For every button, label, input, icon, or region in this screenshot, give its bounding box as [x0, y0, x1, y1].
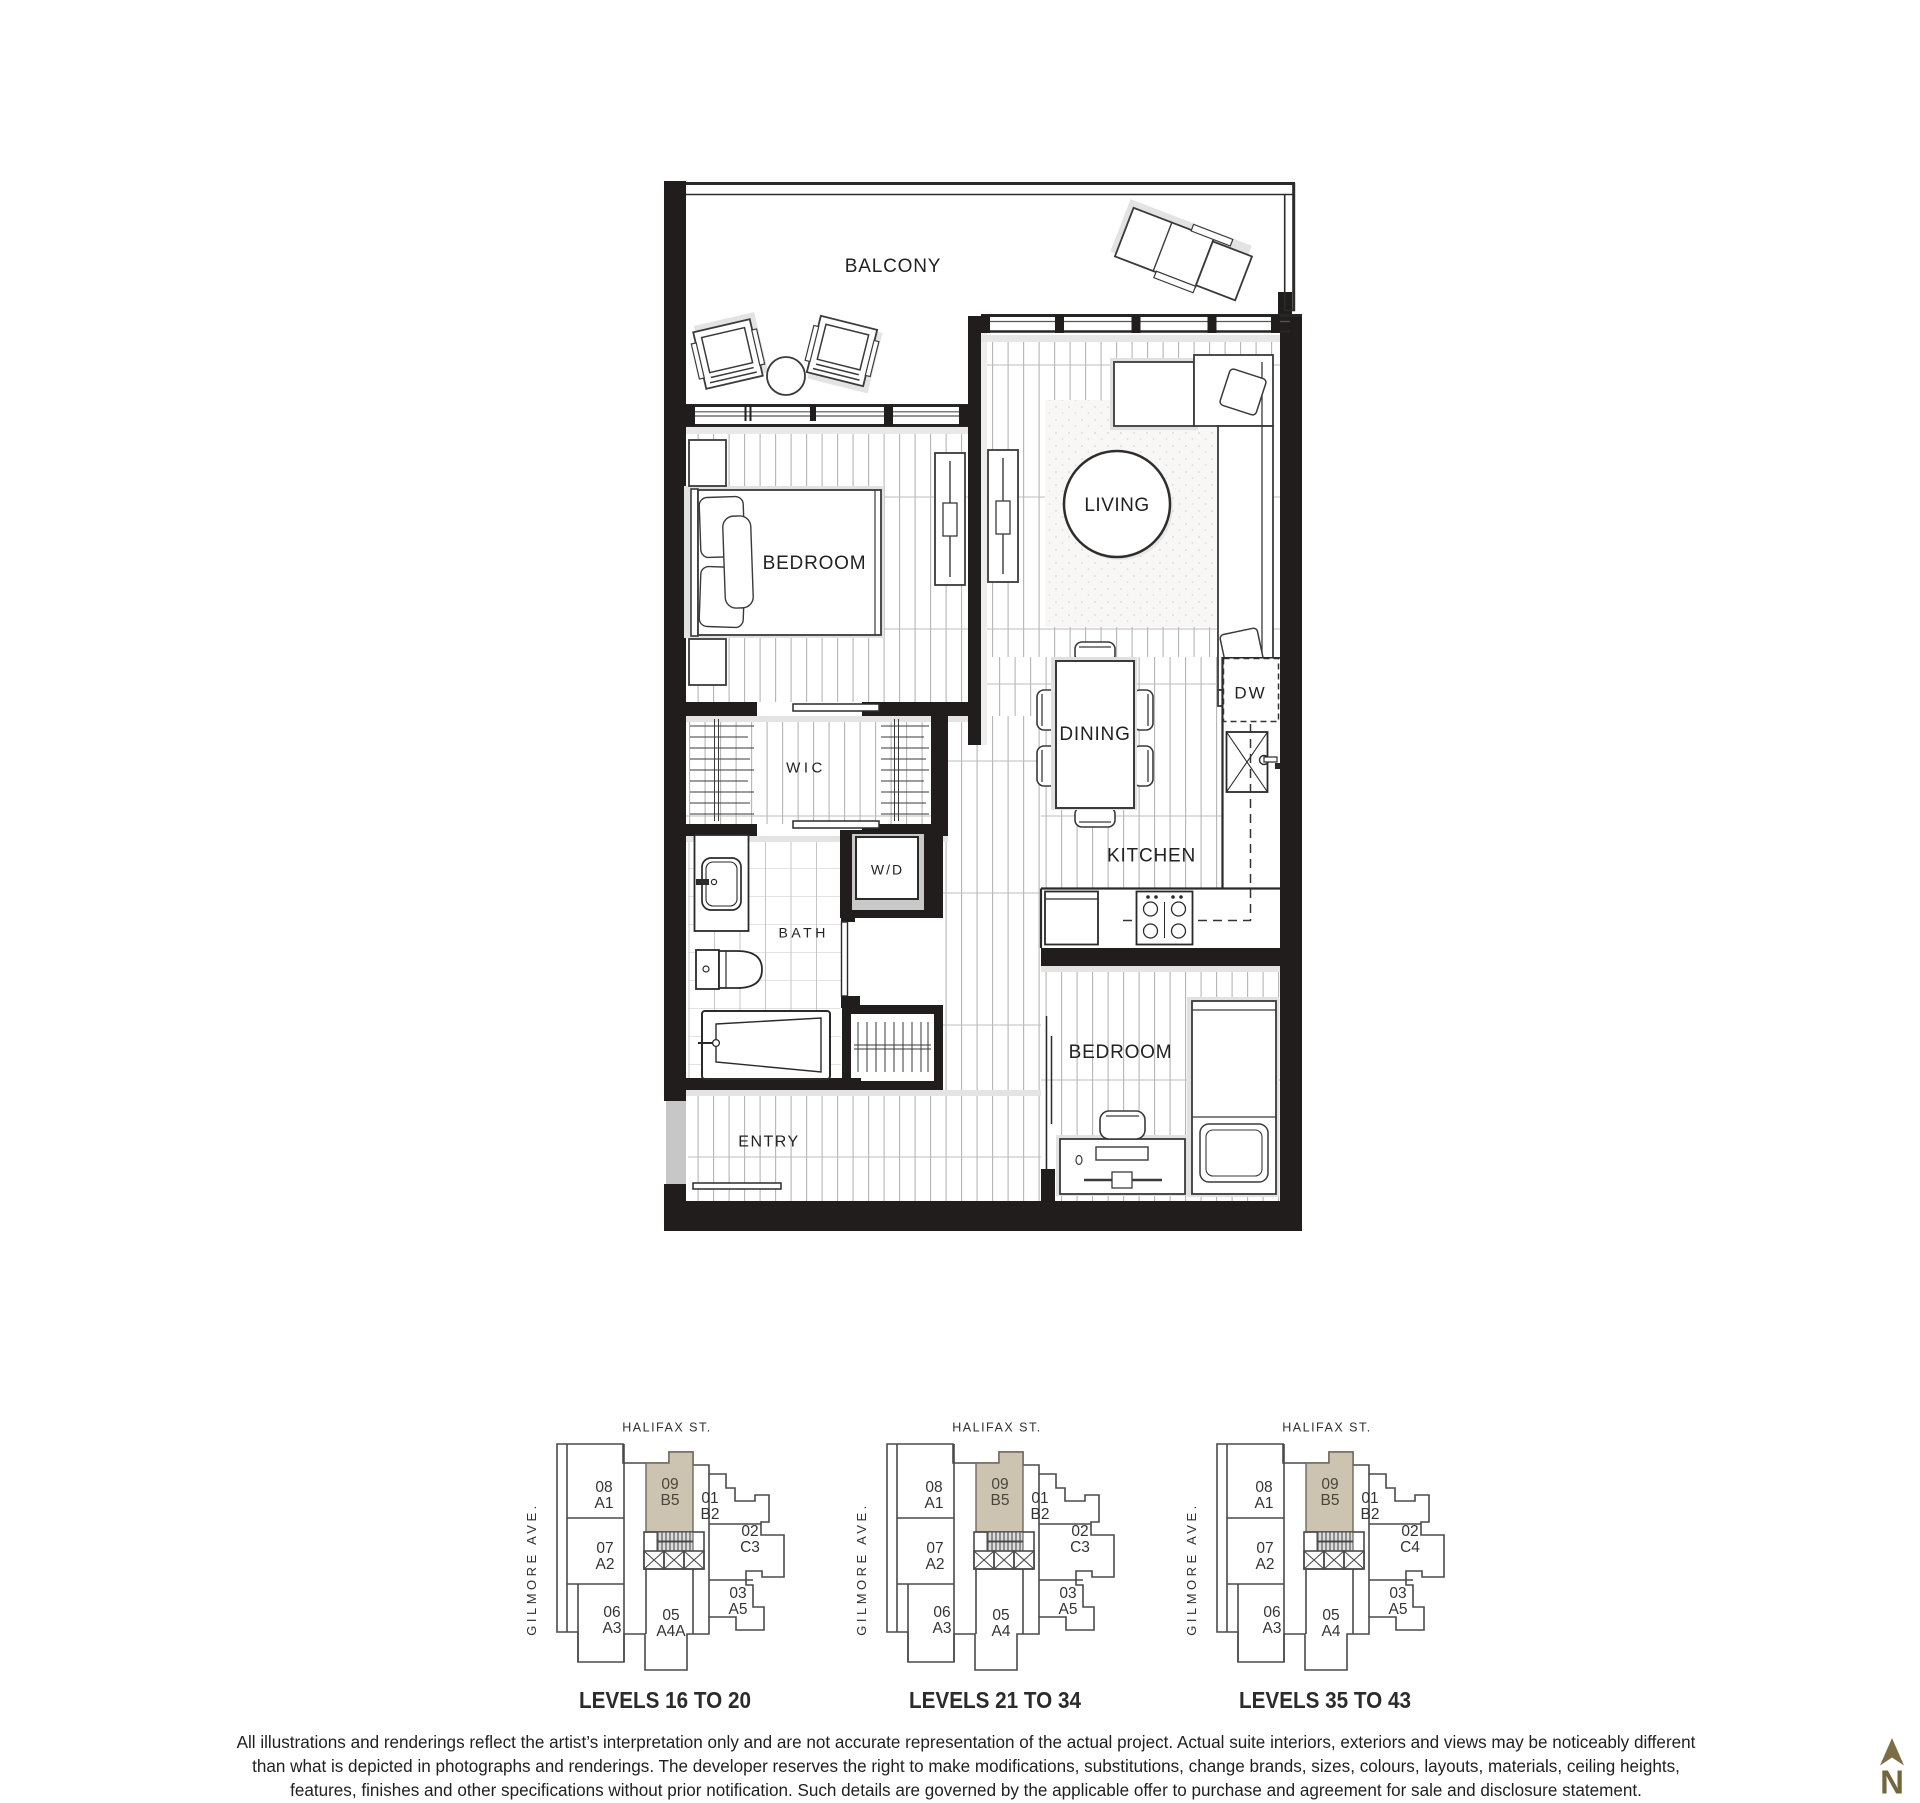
svg-text:GILMORE AVE.: GILMORE AVE.	[524, 1502, 539, 1636]
svg-text:06: 06	[603, 1604, 620, 1621]
svg-text:LEVELS 35 TO 43: LEVELS 35 TO 43	[1239, 1687, 1411, 1713]
svg-text:B2: B2	[1361, 1506, 1380, 1523]
svg-text:02: 02	[1401, 1523, 1418, 1540]
svg-text:A4: A4	[992, 1623, 1011, 1640]
svg-text:03: 03	[1059, 1585, 1076, 1602]
svg-text:A5: A5	[729, 1601, 748, 1618]
svg-text:HALIFAX ST.: HALIFAX ST.	[622, 1421, 711, 1435]
svg-text:GILMORE AVE.: GILMORE AVE.	[1184, 1502, 1199, 1636]
svg-text:03: 03	[1389, 1585, 1406, 1602]
svg-text:05: 05	[662, 1607, 679, 1624]
svg-text:05: 05	[1322, 1607, 1339, 1624]
svg-text:LEVELS 21 TO 34: LEVELS 21 TO 34	[909, 1687, 1081, 1713]
svg-text:B5: B5	[661, 1492, 680, 1509]
svg-text:A4: A4	[1322, 1623, 1341, 1640]
svg-text:C3: C3	[740, 1539, 760, 1556]
svg-text:03: 03	[729, 1585, 746, 1602]
svg-text:06: 06	[1263, 1604, 1280, 1621]
svg-text:A1: A1	[1255, 1495, 1274, 1512]
svg-text:07: 07	[596, 1540, 613, 1557]
svg-text:07: 07	[926, 1540, 943, 1557]
svg-text:than what is depicted in photo: than what is depicted in photographs and…	[252, 1757, 1680, 1776]
svg-text:LIVING: LIVING	[1084, 495, 1149, 516]
svg-text:09: 09	[1321, 1476, 1338, 1493]
svg-text:HALIFAX ST.: HALIFAX ST.	[1282, 1421, 1371, 1435]
svg-text:A1: A1	[595, 1495, 614, 1512]
svg-text:01: 01	[1361, 1490, 1378, 1507]
svg-text:BALCONY: BALCONY	[845, 256, 941, 277]
svg-text:WIC: WIC	[786, 760, 826, 777]
svg-text:A5: A5	[1059, 1601, 1078, 1618]
svg-text:DW: DW	[1234, 684, 1266, 703]
svg-text:01: 01	[1031, 1490, 1048, 1507]
svg-text:All illustrations and renderin: All illustrations and renderings reflect…	[237, 1733, 1696, 1752]
svg-text:02: 02	[1071, 1523, 1088, 1540]
svg-text:09: 09	[661, 1476, 678, 1493]
svg-text:B2: B2	[1031, 1506, 1050, 1523]
svg-text:A4A: A4A	[656, 1623, 686, 1640]
svg-text:02: 02	[741, 1523, 758, 1540]
svg-text:A2: A2	[596, 1556, 615, 1573]
svg-text:ENTRY: ENTRY	[738, 1133, 799, 1150]
svg-text:A3: A3	[933, 1620, 952, 1637]
svg-text:08: 08	[925, 1479, 942, 1496]
svg-text:features, finishes and other s: features, finishes and other specificati…	[290, 1781, 1642, 1800]
svg-text:A3: A3	[1263, 1620, 1282, 1637]
svg-text:B5: B5	[991, 1492, 1010, 1509]
svg-text:BEDROOM: BEDROOM	[1069, 1042, 1173, 1063]
svg-text:06: 06	[933, 1604, 950, 1621]
svg-text:B5: B5	[1321, 1492, 1340, 1509]
svg-text:BEDROOM: BEDROOM	[763, 553, 867, 574]
svg-text:C4: C4	[1400, 1539, 1420, 1556]
svg-text:C3: C3	[1070, 1539, 1090, 1556]
svg-text:A1: A1	[925, 1495, 944, 1512]
svg-text:A5: A5	[1389, 1601, 1408, 1618]
svg-text:GILMORE AVE.: GILMORE AVE.	[854, 1502, 869, 1636]
svg-text:05: 05	[992, 1607, 1009, 1624]
svg-text:A3: A3	[603, 1620, 622, 1637]
svg-text:BATH: BATH	[779, 925, 829, 941]
svg-text:08: 08	[1255, 1479, 1272, 1496]
svg-text:A2: A2	[926, 1556, 945, 1573]
svg-text:LEVELS 16 TO 20: LEVELS 16 TO 20	[579, 1687, 751, 1713]
svg-text:B2: B2	[701, 1506, 720, 1523]
svg-text:A2: A2	[1256, 1556, 1275, 1573]
svg-text:HALIFAX ST.: HALIFAX ST.	[952, 1421, 1041, 1435]
svg-text:KITCHEN: KITCHEN	[1107, 846, 1196, 867]
svg-text:09: 09	[991, 1476, 1008, 1493]
svg-text:07: 07	[1256, 1540, 1273, 1557]
svg-text:DINING: DINING	[1059, 724, 1130, 745]
svg-text:N: N	[1880, 1764, 1904, 1801]
svg-text:01: 01	[701, 1490, 718, 1507]
svg-text:W/D: W/D	[871, 862, 904, 878]
svg-text:08: 08	[595, 1479, 612, 1496]
